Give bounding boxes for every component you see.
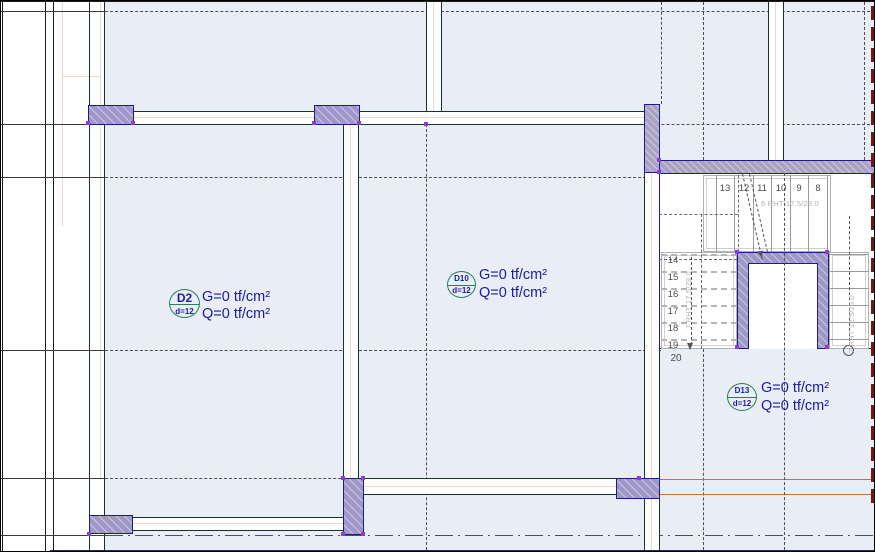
slab-tag-d10[interactable]: D10 d=12 bbox=[447, 271, 476, 298]
grid-line-h bbox=[105, 535, 875, 536]
slab-tag-d2[interactable]: D2 d=12 bbox=[169, 289, 200, 318]
slab-tag-thickness: d=12 bbox=[170, 307, 199, 316]
step-number-landing: 20 bbox=[665, 353, 687, 364]
step-number: 12 bbox=[735, 183, 753, 194]
beam-top[interactable] bbox=[105, 111, 644, 125]
grid-line-h bbox=[105, 350, 661, 351]
slab-load-g: G=0 tf/cm² bbox=[761, 380, 829, 396]
step-number: 10 bbox=[772, 183, 790, 194]
column[interactable] bbox=[616, 478, 660, 499]
margin-grid-h bbox=[1, 177, 105, 178]
step-number: 19 bbox=[663, 340, 683, 351]
slab-tag-name: D13 bbox=[728, 386, 756, 395]
accent-line-orange bbox=[660, 494, 872, 495]
stair-dashed-line bbox=[659, 214, 738, 215]
step-number: 11 bbox=[753, 183, 771, 194]
margin-line-beige bbox=[100, 1, 101, 478]
slab-tag-name: D2 bbox=[170, 291, 199, 305]
grid-line-h bbox=[105, 11, 875, 12]
selection-handle[interactable] bbox=[341, 476, 345, 480]
selection-handle[interactable] bbox=[86, 121, 90, 125]
stair-flight-label: 7 RHT 12.5/25.0 bbox=[809, 273, 875, 353]
selection-handle[interactable] bbox=[357, 121, 361, 125]
slab-tag-thickness: d=12 bbox=[728, 399, 756, 408]
selection-handle[interactable] bbox=[87, 532, 91, 536]
stair-top-wall[interactable] bbox=[659, 160, 875, 174]
grid-line-v bbox=[703, 2, 704, 160]
step-number: 9 bbox=[790, 183, 808, 194]
selection-handle[interactable] bbox=[312, 121, 316, 125]
cad-drawing-canvas: 13 12 11 10 9 8 14 15 16 17 18 19 20 6 R… bbox=[0, 0, 875, 552]
margin-line-beige bbox=[63, 76, 101, 77]
grid-line-v bbox=[864, 2, 865, 160]
wall-middle[interactable] bbox=[343, 125, 360, 478]
slab-load-q: Q=0 tf/cm² bbox=[202, 306, 270, 322]
accent-line-orange bbox=[660, 479, 872, 480]
margin-wall-line bbox=[45, 1, 47, 552]
stair-tread bbox=[827, 175, 828, 252]
selection-handle[interactable] bbox=[424, 122, 428, 126]
grid-line-h bbox=[105, 177, 661, 178]
selection-handle[interactable] bbox=[361, 532, 365, 536]
margin-line-beige bbox=[62, 1, 63, 226]
grid-line-v bbox=[703, 349, 704, 550]
stair-core-opening bbox=[748, 263, 818, 349]
slab-load-q: Q=0 tf/cm² bbox=[479, 285, 547, 301]
selection-handle[interactable] bbox=[341, 532, 345, 536]
slab-tag-d13[interactable]: D13 d=12 bbox=[727, 383, 757, 411]
step-number: 8 bbox=[809, 183, 827, 194]
beam-bottom-left[interactable] bbox=[133, 517, 343, 531]
slab-tag-thickness: d=12 bbox=[448, 286, 475, 295]
grid-line-v bbox=[661, 2, 662, 104]
grid-line-h bbox=[105, 478, 361, 479]
stair-flight-label: 7 RHT 17.5/28.0 bbox=[646, 249, 736, 329]
selection-handle[interactable] bbox=[825, 250, 829, 254]
wall-top-2[interactable] bbox=[768, 2, 785, 160]
margin-wall-line bbox=[53, 1, 54, 552]
margin-grid-h bbox=[1, 350, 105, 351]
slab-load-g: G=0 tf/cm² bbox=[479, 267, 547, 283]
slab-edge-line bbox=[89, 1, 91, 552]
stair-walkline-arrow bbox=[687, 343, 693, 350]
column[interactable] bbox=[89, 515, 133, 534]
grid-line-v bbox=[784, 173, 785, 550]
stair-side-wall[interactable] bbox=[644, 104, 661, 173]
section-wall-red bbox=[871, 6, 875, 506]
selection-handle[interactable] bbox=[657, 158, 661, 162]
margin-wall-line bbox=[2, 1, 4, 552]
slab-load-q: Q=0 tf/cm² bbox=[761, 398, 829, 414]
column[interactable] bbox=[314, 105, 360, 125]
selection-handle[interactable] bbox=[131, 121, 135, 125]
slab-edge-line bbox=[104, 1, 106, 550]
column[interactable] bbox=[88, 105, 134, 125]
column[interactable] bbox=[343, 478, 364, 535]
selection-handle[interactable] bbox=[637, 476, 641, 480]
margin-grid-h bbox=[1, 11, 105, 12]
stair-walkline-arrow bbox=[757, 250, 764, 258]
tag-divider bbox=[728, 397, 756, 398]
selection-handle[interactable] bbox=[657, 170, 661, 174]
slab-load-g: G=0 tf/cm² bbox=[202, 289, 270, 305]
beam-bottom-mid[interactable] bbox=[364, 478, 644, 495]
stair-flight-label: 6 RHT 17.5/28.0 bbox=[761, 199, 819, 208]
selection-handle[interactable] bbox=[735, 345, 739, 349]
margin-grid-h bbox=[1, 478, 105, 479]
wall-top-1[interactable] bbox=[426, 2, 443, 111]
slab-tag-name: D10 bbox=[448, 274, 475, 283]
selection-handle[interactable] bbox=[361, 476, 365, 480]
step-number: 13 bbox=[716, 183, 734, 194]
